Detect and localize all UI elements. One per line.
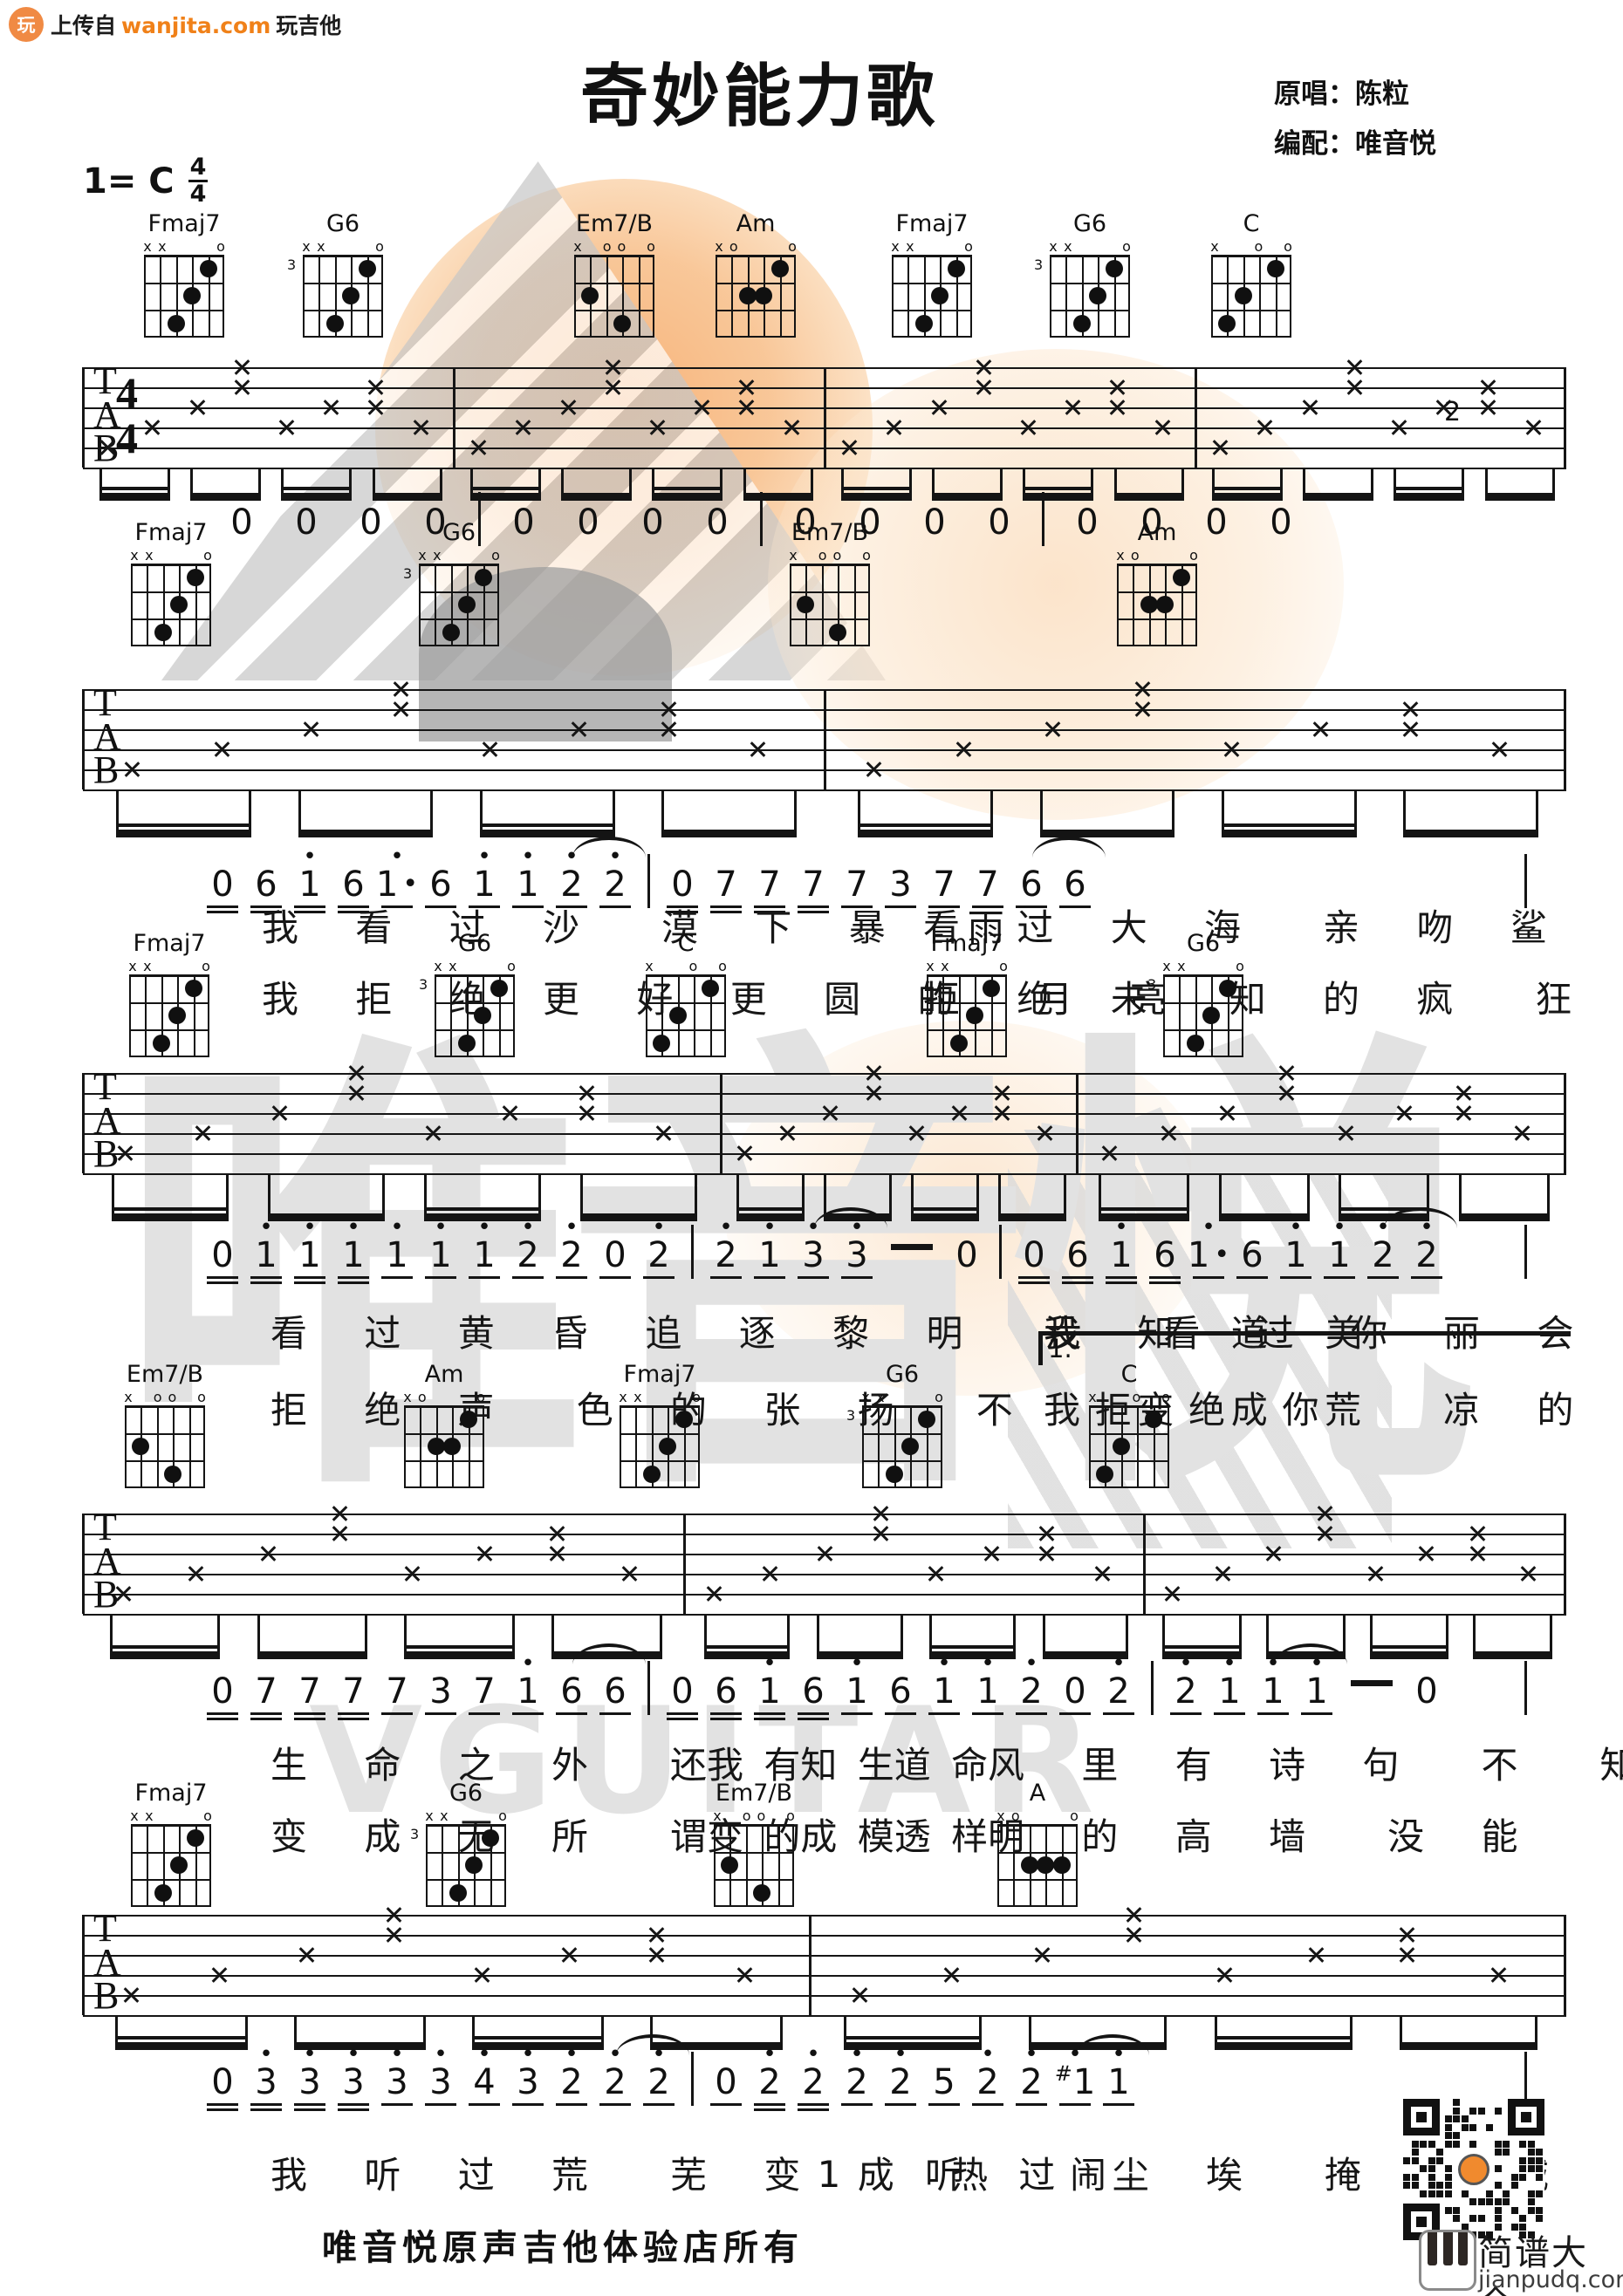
string-line (189, 1405, 191, 1488)
rhythm-underline (1170, 1712, 1202, 1715)
finger-dot (490, 980, 508, 997)
staff-line (83, 1093, 1566, 1095)
qr-module (1445, 2115, 1452, 2122)
qr-module (1536, 2149, 1543, 2156)
string-marker (172, 1808, 184, 1824)
fret-line (1117, 618, 1197, 620)
note-number-row: 0 (1023, 1237, 1044, 1274)
strum-x-mark (955, 741, 972, 758)
string-line (318, 255, 320, 338)
qr-module (1519, 2141, 1526, 2148)
note-number: 1 (473, 1237, 495, 1274)
note-number: 3 (517, 2064, 538, 2101)
qr-module (1519, 2174, 1526, 2181)
strum-x-mark (1398, 1926, 1415, 1944)
finger-dot (482, 1829, 499, 1847)
fret-line (790, 591, 870, 593)
string-marker: o (728, 239, 740, 255)
string-marker: x (432, 959, 444, 974)
string-marker: o (373, 239, 386, 255)
string-marker (185, 959, 197, 974)
strum-x-mark (570, 721, 587, 738)
staff-line (83, 1995, 1566, 1997)
fret-line (716, 310, 796, 311)
string-marker: x (995, 1808, 1007, 1824)
melody-bar-line (647, 1661, 650, 1715)
fret-line (714, 1905, 794, 1907)
note-number: 1 (298, 1237, 320, 1274)
chord-string-markers: xooo (569, 239, 660, 255)
string-line (420, 1405, 421, 1488)
string-line (790, 564, 791, 646)
rhythm-underline (425, 1276, 456, 1279)
chord-name: Em7/B (709, 1781, 799, 1805)
string-line (497, 564, 499, 646)
melody-note: •1 (748, 1221, 791, 1279)
strum-x-mark (660, 721, 677, 738)
strum-x-mark (736, 1145, 753, 1162)
chord-name: G6 (1044, 212, 1135, 236)
beam-group (844, 2015, 982, 2050)
string-marker (200, 239, 212, 255)
rhythm-underline (469, 2103, 500, 2106)
melody-note: 0 (902, 489, 967, 541)
qr-module (1403, 2174, 1410, 2181)
bar-line (1195, 367, 1197, 468)
melody-bar-line (1042, 492, 1044, 546)
string-marker: o (215, 239, 227, 255)
finger-dot (342, 287, 360, 304)
finger-dot (950, 1035, 968, 1052)
fret-line (1089, 1486, 1169, 1488)
note-number: 2 (1372, 1237, 1394, 1274)
note-number-row: 1 (1110, 1237, 1132, 1274)
finger-dot (797, 596, 814, 613)
string-line (778, 1824, 780, 1907)
string-line (1117, 564, 1119, 646)
key-signature: 1= C 4 4 (83, 155, 208, 208)
credit-arranger: 编配：唯音悦 (1274, 120, 1588, 169)
melody-note: •2 (550, 2048, 593, 2106)
qr-module (1428, 2165, 1435, 2172)
note-number: 0 (715, 2064, 736, 2101)
finger-dot (966, 1007, 983, 1024)
finger-dot (983, 980, 1000, 997)
string-marker: x (617, 1390, 629, 1405)
note-number: 2 (976, 2064, 998, 2101)
finger-dot (771, 260, 789, 277)
beam-row (83, 789, 1566, 837)
string-marker: x (143, 548, 155, 564)
fret-line (927, 1029, 1007, 1031)
chord-grid (1089, 1405, 1169, 1488)
strum-x-mark (736, 1966, 753, 1984)
note-number-row: 0 (671, 1673, 693, 1710)
melody-note: •2 (748, 2048, 791, 2111)
strum-x-mark (188, 399, 206, 416)
strum-x-mark (1346, 379, 1363, 396)
string-marker (889, 1390, 901, 1405)
finger-dot (132, 1438, 149, 1455)
fret-line (404, 1486, 484, 1488)
qr-module (1486, 2124, 1493, 2131)
chord-diagram-C: Cxoo (1206, 212, 1297, 338)
strum-x-mark (385, 1926, 402, 1944)
note-number-row: 0 (211, 2064, 233, 2101)
note-number-row: 1 (342, 1237, 364, 1274)
note-number-row: 6 (889, 1673, 911, 1710)
note-number-row: 1 (1262, 1673, 1284, 1710)
beam-group (116, 789, 251, 837)
note-number: 0 (641, 504, 663, 541)
fret-line (716, 283, 796, 284)
string-line (145, 974, 147, 1057)
melody-note: •1 (332, 1221, 375, 1284)
melody-note: •3 (288, 2048, 332, 2111)
note-number-row: 6 (1241, 1237, 1263, 1274)
note-number-row: 0 (604, 1237, 626, 1274)
fret-line (129, 974, 209, 977)
finger-dot (1219, 980, 1236, 997)
string-line (1005, 974, 1007, 1057)
qr-module (1503, 2141, 1510, 2148)
bar-line (82, 1073, 85, 1173)
note-number-row: 0 (1205, 504, 1227, 541)
note-number: 7 (715, 866, 736, 903)
note-number-row: 7 (473, 1673, 495, 1710)
rhythm-underline (798, 1712, 829, 1715)
bar-line (1564, 1073, 1566, 1173)
qr-module (1495, 2108, 1502, 2115)
qr-module (1536, 2190, 1543, 2197)
string-line (157, 1405, 159, 1488)
melody-note: 0 (945, 1221, 989, 1274)
melody-note: 6 (1230, 1221, 1274, 1279)
rhythm-underline (1193, 1276, 1224, 1279)
note-number: 7 (298, 1673, 320, 1710)
finger-dot (164, 1466, 181, 1483)
string-marker (661, 1390, 673, 1405)
note-number: 0 (512, 504, 534, 541)
jianpu-site-link[interactable]: jianpudq.com (1478, 2266, 1623, 2293)
note-number-row: 7 (976, 866, 998, 903)
strum-x-mark (927, 1565, 944, 1582)
note-number-row: 2 (846, 2064, 867, 2101)
string-marker (1038, 1808, 1051, 1824)
melody-note: •1 (506, 1657, 550, 1715)
strum-x-mark (1277, 1064, 1295, 1082)
fret-line (129, 1029, 209, 1031)
string-marker (170, 959, 182, 974)
note-number: 6 (429, 866, 451, 903)
beam-group (580, 1173, 697, 1221)
chord-name: Fmaj7 (126, 521, 216, 544)
note-number: 6 (1154, 1237, 1175, 1274)
string-marker (445, 1390, 457, 1405)
string-line (1050, 255, 1051, 338)
beam-group (1370, 1614, 1449, 1659)
string-marker (1219, 959, 1231, 974)
base-fret-label: 3 (287, 256, 296, 273)
staff-line (83, 1574, 1566, 1575)
string-marker: o (817, 548, 829, 564)
string-line (1259, 255, 1261, 338)
strum-x-mark (1037, 1545, 1055, 1562)
upload-site-link[interactable]: wanjita.com (121, 13, 270, 38)
note-number-row: 0 (295, 504, 317, 541)
melody-note: 7 (375, 1657, 419, 1715)
melody-note: •1 (1295, 1657, 1339, 1715)
rhythm-underline (972, 1712, 1003, 1715)
note-number: 0 (1415, 1673, 1437, 1710)
string-marker: x (1086, 1390, 1099, 1405)
chord-string-markers: xxo (921, 959, 1012, 974)
qr-module (1495, 2215, 1502, 2222)
strum-x-mark (604, 359, 621, 376)
melody-note: 6 (879, 1657, 922, 1715)
string-marker: x (924, 959, 936, 974)
qr-module (1412, 2182, 1419, 2189)
note-number: 0 (923, 504, 945, 541)
strum-x-mark (975, 379, 992, 396)
qr-module (1536, 2157, 1543, 2164)
fret-line (862, 1405, 942, 1408)
strum-x-mark (99, 439, 116, 456)
string-marker (181, 1390, 193, 1405)
string-marker (137, 1390, 149, 1405)
fret-line (646, 1029, 726, 1031)
string-marker: o (1010, 1808, 1022, 1824)
finger-dot (901, 1438, 919, 1455)
rhythm-underline (1301, 1712, 1332, 1715)
qr-module (1469, 2198, 1476, 2205)
note-number: 2 (802, 2064, 824, 2101)
fret-line (303, 310, 383, 311)
note-number: 7 (976, 866, 998, 903)
chord-name: G6 (414, 521, 504, 544)
strum-x-mark (654, 1124, 672, 1142)
note-number-row: 4 (473, 2064, 495, 2101)
note-number-row: 6 (604, 1673, 626, 1710)
melody-bar-line (760, 492, 763, 546)
fret-line (1050, 255, 1130, 257)
string-marker (983, 959, 995, 974)
chord-diagram-G6: G6xxo3 (1158, 932, 1249, 1057)
qr-module (1428, 2174, 1435, 2181)
melody-note: •4 (462, 2048, 506, 2106)
string-marker (954, 959, 966, 974)
chord-diagram-Am: Amxoo (710, 212, 801, 338)
melody-note: •2 (791, 2048, 835, 2111)
chord-grid (716, 255, 796, 338)
beam-group (1473, 1614, 1552, 1659)
base-fret-label: 3 (419, 976, 428, 993)
note-number: 7 (473, 1673, 495, 1710)
note-number-row: 7 (298, 1673, 320, 1710)
note-number: 3 (298, 2064, 320, 2101)
note-number: 2 (1107, 1673, 1129, 1710)
melody-note: 7 (244, 1657, 288, 1720)
chord-diagram-Em7-B: Em7/Bxooo (569, 212, 660, 338)
fret-line (426, 1879, 506, 1881)
qr-module (1495, 2141, 1502, 2148)
qr-module (1436, 2157, 1443, 2164)
chord-grid (144, 255, 224, 338)
finger-dot (458, 1035, 476, 1052)
strum-x-mark (259, 1545, 277, 1562)
strum-x-mark (122, 1986, 140, 2004)
melody-note: •#1 (1053, 2048, 1097, 2106)
fret-line (131, 1852, 211, 1854)
rhythm-underline (1103, 2103, 1134, 2106)
fret-line (129, 1056, 209, 1057)
rhythm-underline (250, 1281, 282, 1284)
qr-finder-pattern (1403, 2099, 1440, 2135)
fret-line (303, 283, 383, 284)
rhythm-underline (599, 2103, 631, 2106)
string-line (698, 1405, 700, 1488)
string-line (862, 1405, 864, 1488)
string-marker: o (202, 1808, 214, 1824)
fret-line (620, 1486, 700, 1488)
string-marker: o (997, 959, 1010, 974)
fret-line (714, 1852, 794, 1854)
fret-line (419, 591, 499, 593)
fret-line (131, 591, 211, 593)
chord-diagram-G6: G6xxo3 (857, 1363, 948, 1488)
melody-note: 6 (791, 1657, 835, 1720)
rhythm-underline (643, 2103, 675, 2106)
chord-diagram-Em7-B: Em7/Bxooo (120, 1363, 210, 1488)
melody-line: 0•3•3•3•3•3•4•3•2•2•20•2•2•2•25•2•2•#1•1 (201, 2048, 1527, 2111)
note-number: 2 (517, 1237, 538, 1274)
finger-dot (1156, 596, 1174, 613)
melody-note: 6 (1143, 1221, 1187, 1284)
base-fret-label: 3 (1147, 976, 1156, 993)
rhythm-underline (469, 1712, 500, 1715)
string-marker (757, 239, 769, 255)
fret-line (435, 1056, 515, 1057)
strum-x-mark (1108, 379, 1126, 396)
note-number: 1 (342, 1237, 364, 1274)
staff-line (83, 1935, 1566, 1937)
strum-x-mark (213, 741, 230, 758)
bar-line (824, 689, 826, 789)
melody-dash (1351, 1680, 1393, 1686)
rhythm-underline (667, 1712, 698, 1715)
string-line (716, 255, 717, 338)
strum-x-mark (1044, 721, 1061, 738)
string-marker (918, 1390, 930, 1405)
note-number: 6 (715, 1673, 736, 1710)
note-number: 1 (298, 866, 320, 903)
melody-note: •1 (1274, 1221, 1318, 1279)
note-number: 7 (802, 866, 824, 903)
melody-note: 0 (274, 489, 339, 541)
fret-line (574, 310, 654, 311)
finger-dot (449, 1884, 467, 1902)
string-marker (726, 1808, 738, 1824)
finger-dot (200, 260, 217, 277)
strum-x-mark (1366, 1565, 1384, 1582)
bar-line (82, 1514, 85, 1614)
note-number: 1 (1110, 1237, 1132, 1274)
fret-line (790, 564, 870, 566)
second-beam (846, 2036, 979, 2040)
note-number-row: 0 (988, 504, 1010, 541)
strum-x-mark (872, 1525, 889, 1542)
rhythm-underline (972, 2103, 1003, 2106)
string-marker: o (1234, 959, 1246, 974)
melody-note: •1 (922, 1657, 966, 1715)
strum-x-mark (993, 1104, 1010, 1122)
rhythm-underline (338, 1712, 369, 1715)
second-beam (707, 1645, 787, 1649)
strum-x-mark (749, 741, 766, 758)
note-number: 6 (255, 866, 277, 903)
fret-line (997, 1852, 1078, 1854)
note-number: 1 (386, 1237, 407, 1274)
melody-note: •2 (637, 2048, 681, 2106)
string-line (426, 1824, 428, 1907)
melody-note: 7 (288, 1657, 332, 1720)
credits-block: 原唱：陈粒 编配：唯音悦 (1274, 70, 1588, 170)
note-number-row: 2 (802, 2064, 824, 2101)
string-marker: x (787, 548, 799, 564)
lyrics-line: 我 知 道 风 里 有 诗 句 不 知 道 你 (707, 1736, 1623, 1789)
second-beam (427, 1207, 538, 1211)
fret-line (927, 974, 1007, 977)
note-number-row: 2 (560, 2064, 582, 2101)
string-line (483, 1405, 484, 1488)
rhythm-underline (841, 1712, 873, 1715)
fret-line (714, 1824, 794, 1827)
strum-x-mark (840, 439, 858, 456)
rhythm-underline (885, 1712, 916, 1715)
finger-dot (1235, 287, 1252, 304)
note-number: 1 (1328, 1237, 1350, 1274)
string-line (822, 564, 824, 646)
chord-diagram-Fmaj7: Fmaj7xxo (139, 212, 229, 338)
chord-diagram-G6: G6xxo3 (298, 212, 388, 338)
melody-note: •2 (966, 2048, 1010, 2106)
rhythm-underline (425, 2103, 456, 2106)
note-number-row: 1 (1107, 2064, 1129, 2101)
sharp-sign: # (1055, 2063, 1072, 2085)
chord-grid: 3 (1050, 255, 1130, 338)
strum-x-mark (473, 1966, 490, 1984)
note-number: 1 (758, 1237, 780, 1274)
fret-line (125, 1433, 205, 1435)
chord-grid (620, 1405, 700, 1488)
string-marker: o (831, 548, 843, 564)
rhythm-underline (250, 1276, 282, 1279)
string-line (1195, 564, 1197, 646)
strum-x-mark (778, 1124, 796, 1142)
rhythm-underline (1059, 2103, 1091, 2106)
upload-source-badge[interactable]: 玩 上传自wanjita.com玩吉他 (9, 7, 341, 42)
bar-line (453, 367, 455, 468)
fret-line (435, 1002, 515, 1004)
melody-note: 0 (685, 489, 750, 541)
note-number: 3 (255, 2064, 277, 2101)
note-number: 1 (1284, 1237, 1306, 1274)
second-beam (1165, 1645, 1239, 1649)
qr-module (1469, 2141, 1476, 2148)
tab-staff: TAB (83, 1073, 1566, 1173)
rhythm-underline (294, 1718, 325, 1720)
fret-line (419, 618, 499, 620)
